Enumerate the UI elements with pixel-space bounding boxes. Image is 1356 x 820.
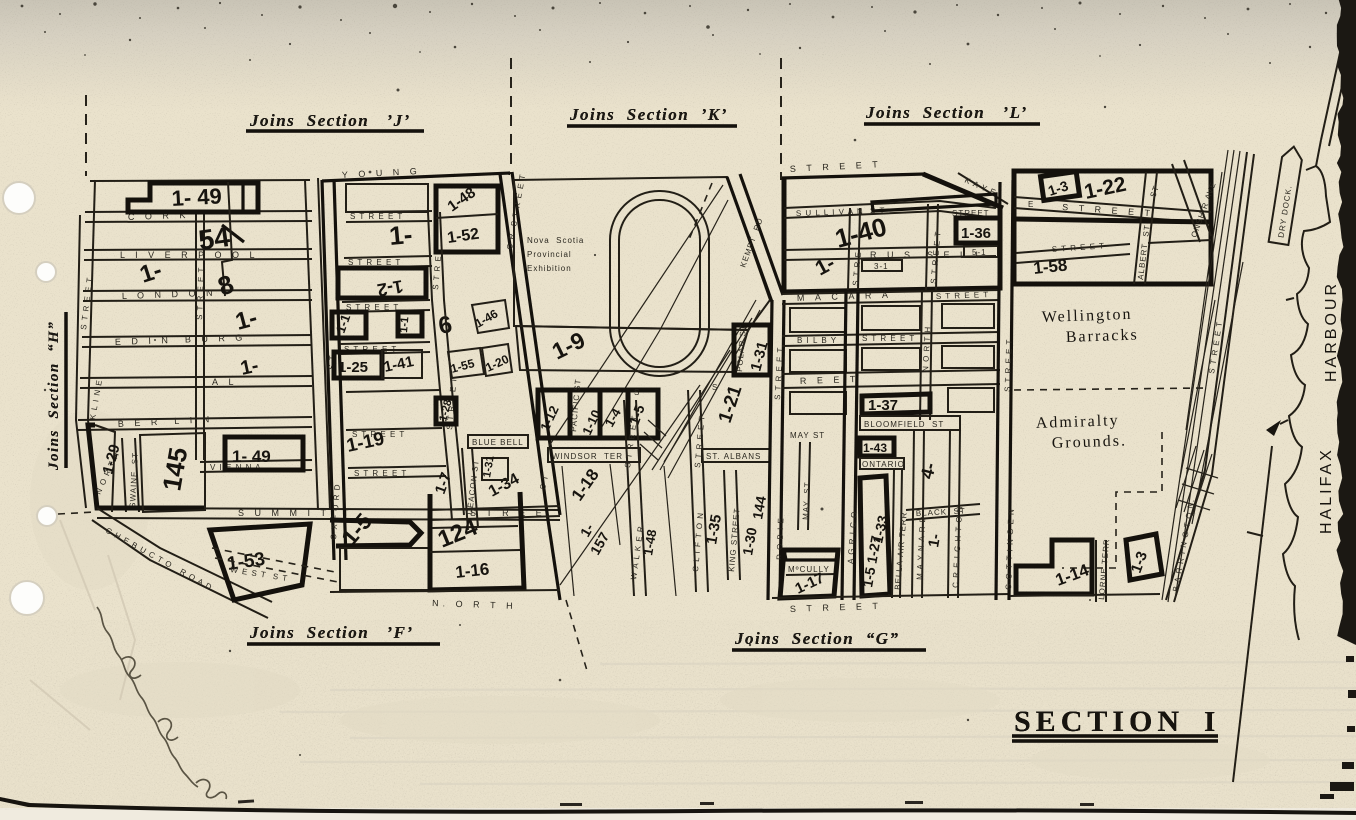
svg-text:Exhibition: Exhibition: [527, 264, 572, 273]
svg-text:Joins Section “G”: Joins Section “G”: [734, 629, 900, 648]
svg-text:Barracks: Barracks: [1066, 326, 1139, 346]
svg-text:SECTION: SECTION: [1014, 705, 1184, 738]
svg-text:BLUE BELL: BLUE BELL: [472, 438, 524, 447]
svg-text:1- 49: 1- 49: [232, 447, 271, 466]
svg-text:1-43: 1-43: [863, 441, 887, 455]
svg-text:E: E: [1028, 200, 1034, 209]
svg-text:Admiralty: Admiralty: [1036, 412, 1120, 432]
svg-text:3-1: 3-1: [874, 262, 889, 271]
svg-text:L I V E R P O O L: L I V E R P O O L: [120, 250, 259, 260]
svg-text:B I L B Y: B I L B Y: [797, 336, 837, 345]
svg-text:WINDSOR TER: WINDSOR TER: [552, 452, 623, 461]
svg-text:S T R E E: S T R E E: [470, 508, 546, 518]
svg-text:ST. ALBANS: ST. ALBANS: [706, 452, 761, 461]
svg-text:1-: 1-: [388, 219, 414, 251]
svg-text:Wellington: Wellington: [1042, 306, 1133, 326]
svg-text:1-25: 1-25: [338, 359, 368, 376]
svg-text:1-16: 1-16: [454, 560, 490, 582]
svg-text:MºCULLY: MºCULLY: [788, 565, 830, 574]
svg-text:Joins Section “H”: Joins Section “H”: [46, 321, 62, 471]
svg-text:1-58: 1-58: [1032, 256, 1068, 278]
svg-text:Grounds.: Grounds.: [1052, 432, 1128, 452]
svg-text:S T R E E T: S T R E E T: [936, 290, 990, 301]
svg-text:S T R E E T: S T R E E T: [195, 267, 206, 321]
svg-text:S: S: [712, 383, 718, 392]
svg-text:HARBOUR: HARBOUR: [1323, 281, 1340, 382]
svg-text:1-37: 1-37: [868, 397, 898, 414]
svg-text:Provincial: Provincial: [527, 250, 572, 259]
svg-text:Joins Section ’L’: Joins Section ’L’: [865, 103, 1028, 122]
svg-text:S: S: [634, 388, 640, 397]
svg-text:HALIFAX: HALIFAX: [1318, 447, 1335, 534]
svg-text:R E E T: R E E T: [800, 374, 860, 386]
svg-text:MAY ST: MAY ST: [790, 431, 825, 440]
svg-text:Joins Section ’F’: Joins Section ’F’: [249, 623, 414, 642]
svg-text:Joins Section ’J’: Joins Section ’J’: [249, 111, 411, 130]
svg-text:A L: A L: [212, 377, 238, 387]
svg-text:1- 49: 1- 49: [171, 183, 222, 211]
svg-text:54: 54: [197, 221, 233, 256]
svg-text:S T R E E T: S T R E E T: [862, 334, 915, 343]
svg-text:Nova Scotia: Nova Scotia: [527, 236, 584, 245]
svg-text:I: I: [1204, 706, 1215, 738]
svg-text:1-1: 1-1: [398, 316, 411, 333]
svg-text:Joins Section ’K’: Joins Section ’K’: [569, 105, 728, 124]
svg-text:ONTARIO: ONTARIO: [862, 460, 905, 469]
svg-text:1-36: 1-36: [961, 225, 991, 242]
svg-text:S T R E E T: S T R E E T: [354, 469, 407, 478]
svg-text:S T R E E T: S T R E E T: [1003, 339, 1014, 393]
svg-text:BLOOMFIELD ST: BLOOMFIELD ST: [864, 420, 944, 429]
